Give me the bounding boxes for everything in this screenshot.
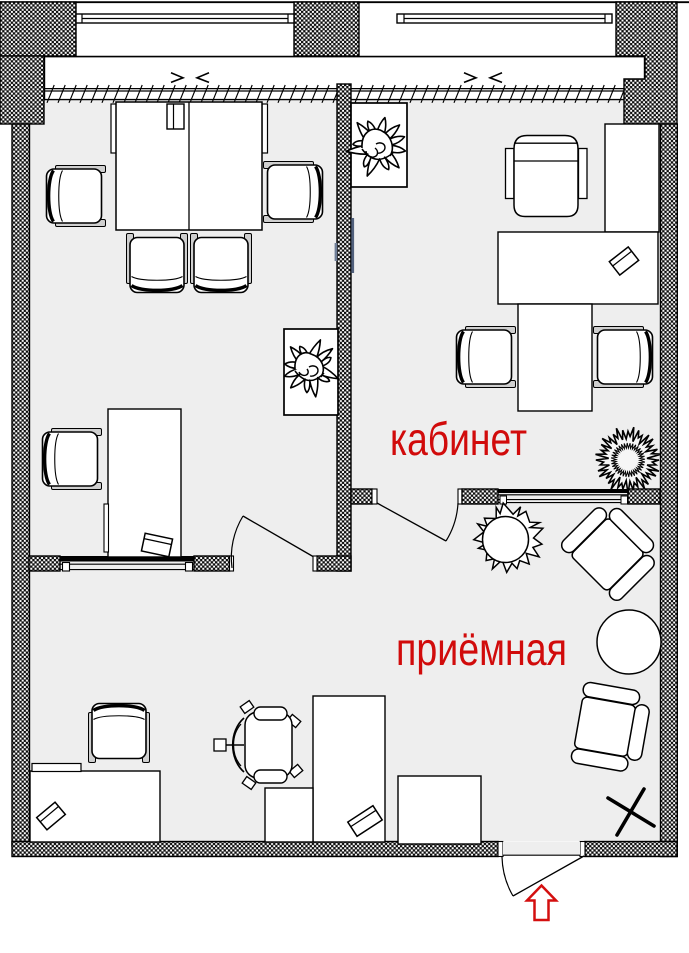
svg-text:приёмная: приёмная: [396, 623, 567, 675]
svg-text:кабинет: кабинет: [390, 413, 527, 465]
